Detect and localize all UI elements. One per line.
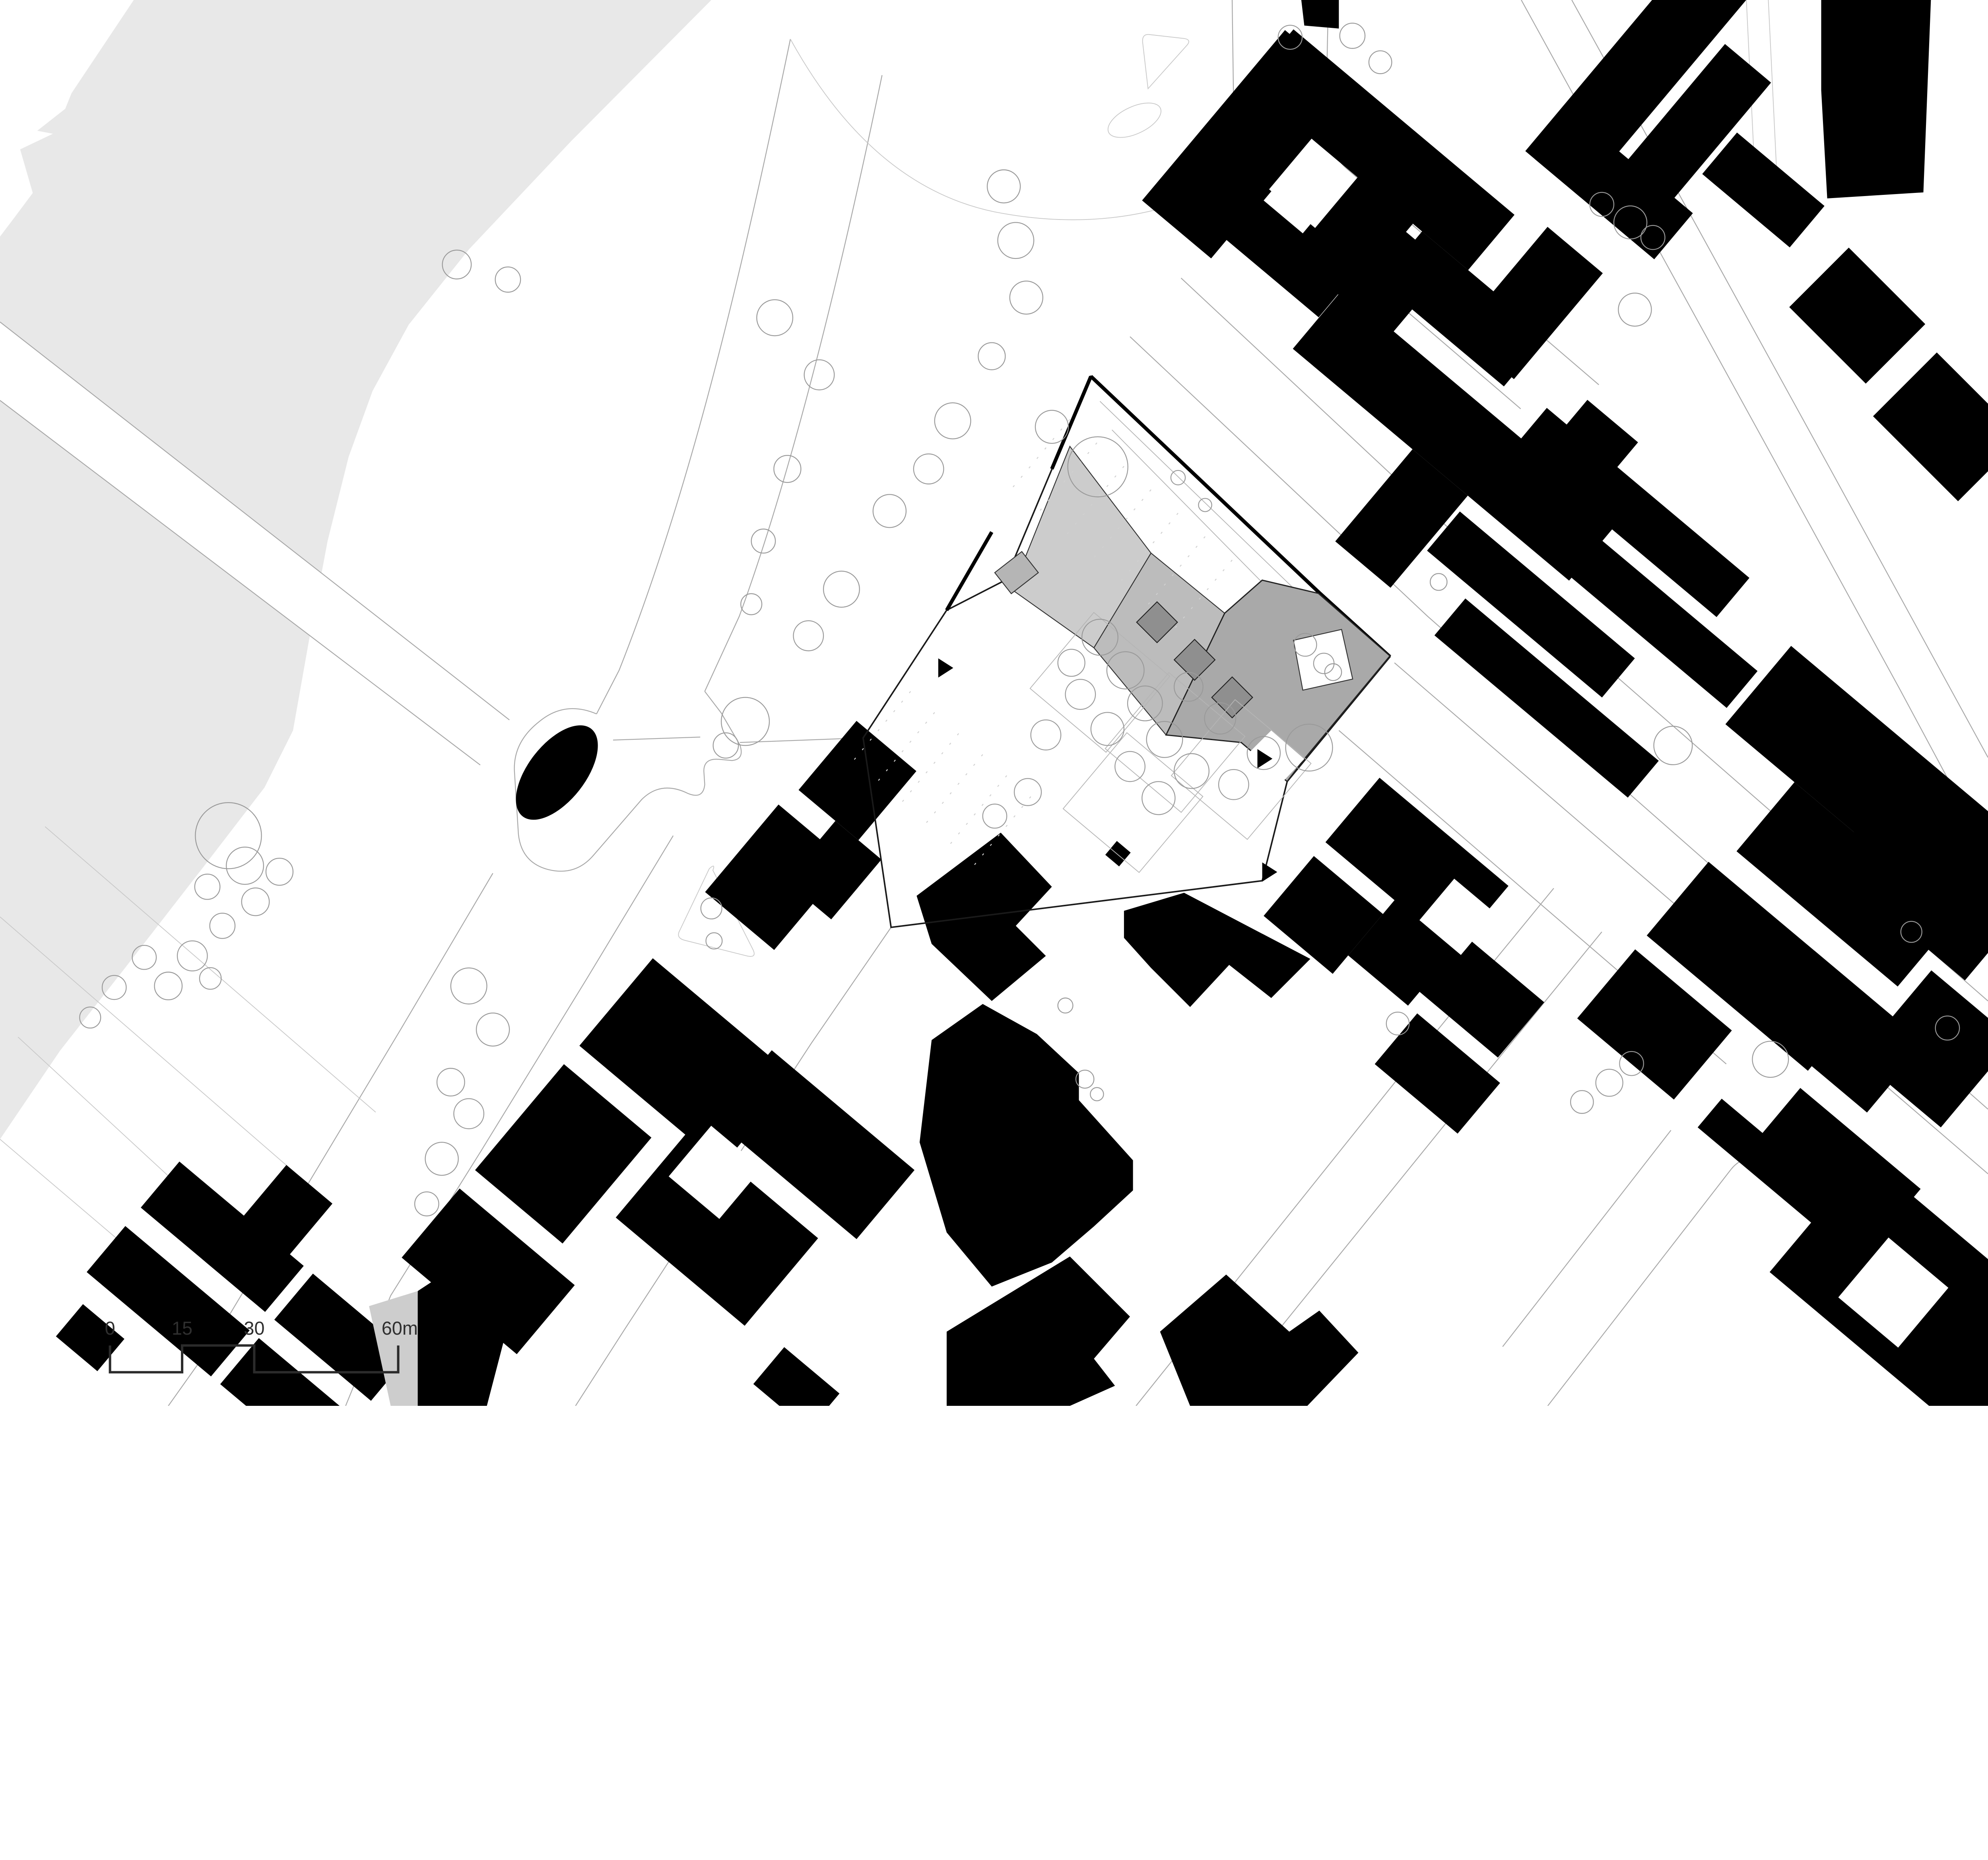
black-dot-marker: [718, 1046, 756, 1083]
scale-label-0: 0: [105, 1318, 115, 1339]
site-plan: 0 15 30 60m: [0, 0, 1988, 1406]
patio-courtyard: [1293, 630, 1353, 690]
scale-label-15: 15: [172, 1318, 192, 1339]
scale-label-60m: 60m: [382, 1318, 418, 1339]
scale-label-30: 30: [244, 1318, 264, 1339]
